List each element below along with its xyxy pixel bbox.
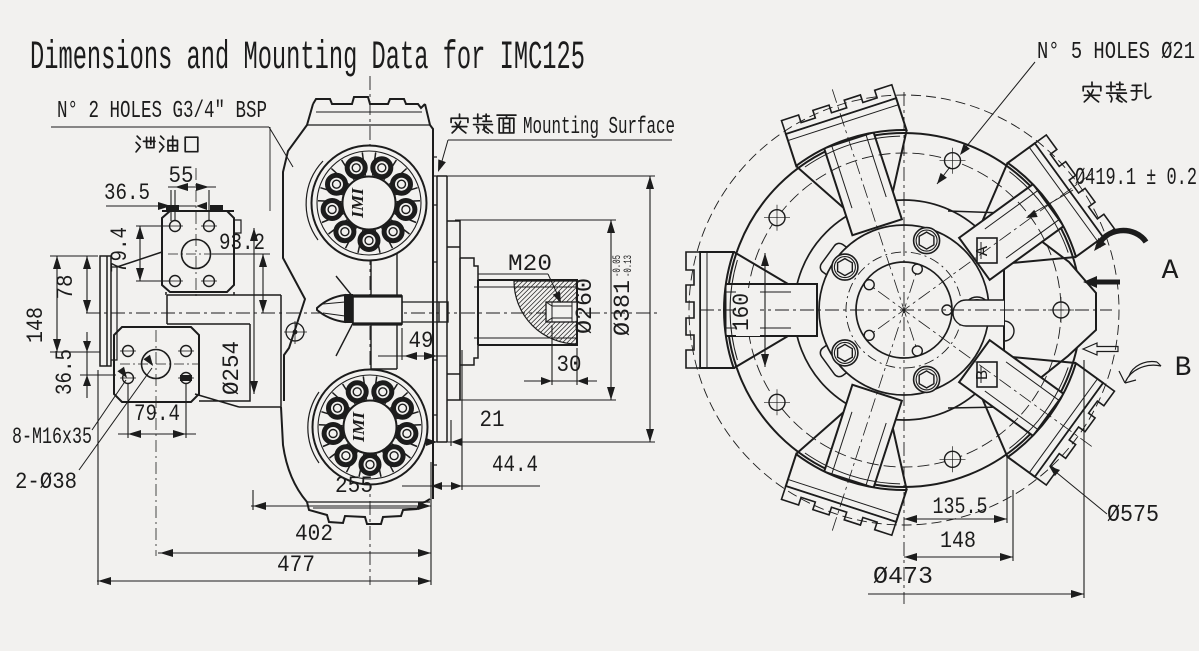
svg-text:M20: M20 [508,251,552,277]
svg-text:A: A [1162,256,1179,287]
svg-text:55: 55 [169,163,194,189]
svg-text:49: 49 [409,328,434,354]
svg-text:N° 2 HOLES G3/4" BSP: N° 2 HOLES G3/4" BSP [57,98,267,125]
svg-text:148: 148 [23,307,49,343]
svg-text:Ø473: Ø473 [873,564,933,591]
svg-text:30: 30 [557,352,582,378]
svg-text:21: 21 [480,407,505,433]
svg-text:44.4: 44.4 [492,452,538,478]
svg-text:Ø575: Ø575 [1107,502,1159,529]
svg-text:Ø381: Ø381 [610,280,636,336]
svg-text:Ø260: Ø260 [572,278,598,334]
svg-text:2-Ø38: 2-Ø38 [15,469,77,495]
svg-text:-0.13: -0.13 [623,255,635,277]
svg-text:255: 255 [335,473,373,499]
svg-text:148: 148 [940,528,976,554]
svg-text:36.5: 36.5 [104,180,150,206]
svg-text:B: B [974,370,993,380]
svg-text:135.5: 135.5 [933,494,988,520]
svg-text:Ø419.1 ± 0.2: Ø419.1 ± 0.2 [1075,165,1197,192]
svg-text:Dimensions and Mounting Data f: Dimensions and Mounting Data for IMC125 [30,36,585,81]
svg-text:B: B [1175,353,1192,384]
svg-text:N° 5 HOLES Ø21: N° 5 HOLES Ø21 [1037,39,1195,66]
svg-text:79.4: 79.4 [134,401,180,427]
svg-text:A: A [974,245,993,256]
svg-text:93.2: 93.2 [219,230,265,256]
svg-text:Ø254: Ø254 [219,341,245,395]
svg-text:160: 160 [729,293,755,331]
svg-text:Mounting Surface: Mounting Surface [523,114,675,141]
svg-text:8-M16x35: 8-M16x35 [12,424,92,450]
svg-text:IMI: IMI [349,411,368,444]
svg-text:477: 477 [277,552,315,578]
svg-text:36.5: 36.5 [52,349,78,395]
svg-text:IMI: IMI [348,187,367,220]
svg-text:79.4: 79.4 [107,227,133,273]
svg-text:402: 402 [295,521,333,547]
